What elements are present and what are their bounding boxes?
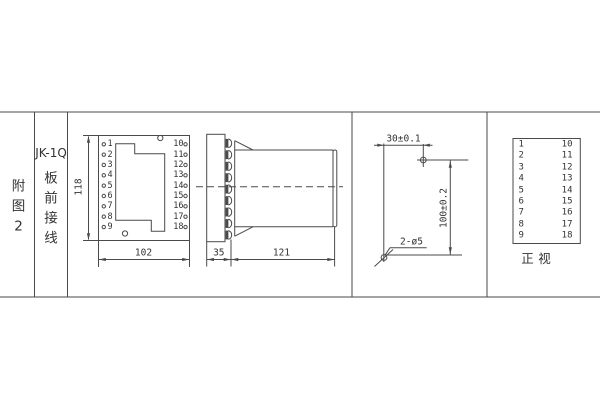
table-cell-right: 12: [562, 163, 573, 172]
terminal-circle-left: [102, 153, 105, 156]
terminal-bump-bar: [226, 139, 229, 148]
case-end-cap: [333, 150, 337, 227]
terminal-bump-arc: [228, 150, 231, 159]
front-terminal-number-right: 16: [173, 202, 183, 211]
table-cell-left: 6: [519, 197, 524, 206]
table-cell-left: 9: [519, 232, 524, 241]
terminal-bump-arc: [228, 219, 231, 228]
table-cell-left: 5: [519, 186, 524, 195]
side-view-panel-depth-dim: 35: [213, 248, 224, 258]
terminal-bump-bar: [226, 162, 229, 171]
drawing-linework: [0, 0, 600, 400]
terminal-circle-right: [184, 215, 187, 218]
terminal-circle-right: [184, 194, 187, 197]
terminal-circle-left: [102, 174, 105, 177]
front-terminal-number-left: 5: [108, 181, 113, 190]
front-terminal-number-right: 17: [173, 212, 183, 221]
terminal-circle-right: [184, 143, 187, 146]
terminal-bump-arc: [228, 185, 231, 194]
wiring-label-char: 接: [44, 212, 58, 226]
table-cell-right: 13: [562, 175, 573, 184]
frame-lines: [0, 112, 600, 297]
drill-holes-label: 2-ø5: [400, 237, 423, 247]
terminal-circle-right: [184, 205, 187, 208]
front-terminal-number-right: 12: [173, 161, 183, 170]
front-terminal-number-right: 11: [173, 150, 183, 159]
drill-spacing-vertical-dim: 100±0.2: [439, 187, 449, 227]
front-view-width-dim: 102: [135, 248, 152, 258]
figure-label-char: 附: [12, 180, 26, 194]
terminal-bump-bar: [226, 231, 229, 240]
front-terminal-number-right: 15: [173, 192, 183, 201]
table-cell-right: 17: [562, 220, 573, 229]
table-cell-right: 11: [562, 152, 573, 161]
figure-label-char: 2: [14, 220, 23, 234]
table-cell-right: 14: [562, 186, 573, 195]
table-cell-right: 18: [562, 232, 573, 241]
table-cell-right: 10: [562, 141, 573, 150]
terminal-circle-left: [102, 143, 105, 146]
wiring-label-char: 前: [44, 192, 58, 206]
table-cell-left: 8: [519, 220, 524, 229]
front-terminal-number-left: 9: [108, 223, 113, 232]
mounting-hole-bottom: [122, 231, 127, 236]
terminal-bump-bar: [226, 185, 229, 194]
side-view-terminal-bumps: [226, 139, 232, 240]
terminal-bump-arc: [228, 162, 231, 171]
terminal-bump-bar: [226, 150, 229, 159]
model-label: JK-1Q: [35, 147, 67, 159]
front-terminal-number-left: 8: [108, 212, 113, 221]
front-terminal-number-left: 4: [108, 171, 113, 180]
terminal-circle-right: [184, 163, 187, 166]
terminal-circle-left: [102, 184, 105, 187]
terminal-circle-right: [184, 225, 187, 228]
front-terminal-number-left: 7: [108, 202, 113, 211]
wiring-label-char: 板: [44, 172, 58, 186]
figure-label-char: 图: [12, 200, 26, 214]
terminal-circle-right: [184, 174, 187, 177]
front-terminal-number-right: 10: [173, 140, 183, 149]
wiring-label-char: 线: [44, 232, 58, 246]
mounting-hole-top: [158, 135, 163, 140]
terminal-circle-left: [102, 205, 105, 208]
panel-plate: [207, 134, 225, 241]
terminal-circle-right: [184, 184, 187, 187]
terminal-bump-arc: [228, 196, 231, 205]
front-terminal-number-left: 2: [108, 150, 113, 159]
terminal-circle-left: [102, 163, 105, 166]
terminal-circle-right: [184, 153, 187, 156]
front-terminal-number-right: 14: [173, 181, 183, 190]
terminal-bump-bar: [226, 173, 229, 182]
table-cell-right: 15: [562, 197, 573, 206]
terminal-bump-arc: [228, 139, 231, 148]
table-caption-char: 视: [538, 252, 551, 265]
table-cell-left: 3: [519, 163, 524, 172]
terminal-bump-bar: [226, 219, 229, 228]
table-cell-left: 2: [519, 152, 524, 161]
terminal-circle-left: [102, 225, 105, 228]
terminal-bump-bar: [226, 208, 229, 217]
table-cell-right: 16: [562, 209, 573, 218]
relay-wiring-technical-drawing: 附 图 2 JK-1Q 板 前 接 线 118 102 35 121 30±0.…: [0, 0, 600, 400]
terminal-circle-left: [102, 194, 105, 197]
front-terminal-number-right: 18: [173, 223, 183, 232]
table-cell-left: 1: [519, 141, 524, 150]
front-terminal-number-right: 13: [173, 171, 183, 180]
front-terminal-number-left: 1: [108, 140, 113, 149]
drill-spacing-horizontal-dim: 30±0.1: [386, 134, 420, 144]
table-caption-char: 正: [521, 252, 534, 265]
front-terminal-number-left: 3: [108, 161, 113, 170]
front-view-height-dim: 118: [74, 178, 84, 195]
table-cell-left: 7: [519, 209, 524, 218]
side-view-body-length-dim: 121: [273, 248, 290, 258]
terminal-bump-arc: [228, 173, 231, 182]
terminal-circle-left: [102, 215, 105, 218]
drill-plan-linework: [374, 144, 468, 267]
terminal-bump-arc: [228, 208, 231, 217]
terminal-bump-arc: [228, 231, 231, 240]
table-cell-left: 4: [519, 175, 524, 184]
terminal-bump-bar: [226, 196, 229, 205]
front-terminal-number-left: 6: [108, 192, 113, 201]
